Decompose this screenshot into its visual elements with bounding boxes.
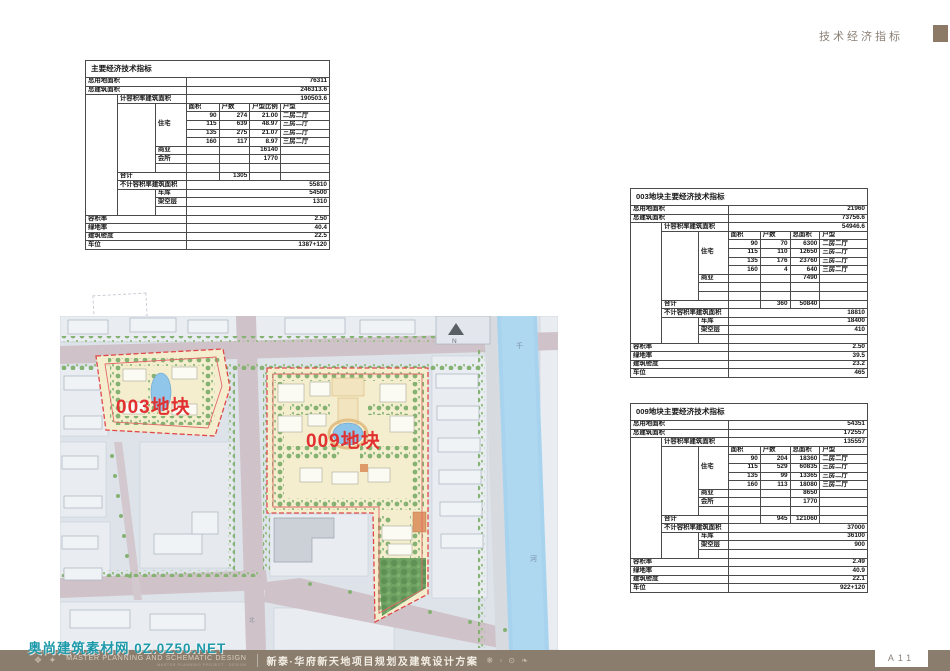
table-cell: 三房二厅 [820, 463, 868, 472]
table-cell [661, 317, 698, 343]
table-cell: 160 [728, 481, 760, 490]
table-cell [698, 283, 728, 292]
table-cell [698, 506, 728, 515]
table-cell: 529 [760, 463, 790, 472]
table-cell: 48.97 [250, 120, 281, 129]
table-cell: 70 [760, 240, 790, 249]
table-cell [820, 498, 868, 507]
site-plan-svg: 千 河 003地块 [60, 316, 558, 650]
table-cell [219, 163, 250, 172]
table-title: 主要经济技术指标 [86, 61, 330, 78]
econ-table-main: 主要经济技术指标总用地面积76311总建筑面积246313.6计容积率建筑面积1… [85, 60, 330, 250]
table-cell: 50840 [790, 300, 820, 309]
table-cell: 户型 [280, 103, 329, 112]
table-cell: 总建筑面积 [631, 214, 729, 223]
table-cell [820, 506, 868, 515]
table-cell: 三房二厅 [820, 257, 868, 266]
table-cell: 不计容积率建筑面积 [661, 524, 728, 533]
table-cell: 99 [760, 472, 790, 481]
table-cell: 7490 [790, 274, 820, 283]
table-cell: 6300 [790, 240, 820, 249]
table-cell: 639 [219, 120, 250, 129]
table-cell: 1770 [250, 155, 281, 164]
table-cell [728, 283, 760, 292]
table-cell [280, 163, 329, 172]
table-cell: 商业 [155, 146, 186, 155]
table-cell [117, 103, 155, 172]
table-cell: 21.07 [250, 129, 281, 138]
table-cell: 总建筑面积 [86, 86, 187, 95]
table-cell: 合计 [117, 172, 186, 181]
table-cell: 绿地率 [86, 224, 187, 233]
table-cell [155, 206, 186, 215]
table-cell: 三房二厅 [280, 120, 329, 129]
table-cell: 面积 [186, 103, 219, 112]
table-cell: 160 [728, 266, 760, 275]
table-cell: 车库 [698, 317, 728, 326]
table-cell [728, 506, 760, 515]
table-cell: 37000 [728, 524, 867, 533]
table-cell: 36100 [728, 532, 867, 541]
table-cell: 住宅 [698, 446, 728, 489]
table-cell: 115 [186, 120, 219, 129]
table-cell: 建筑密度 [631, 360, 729, 369]
table-cell [631, 223, 662, 343]
table-cell: 三房二厅 [280, 138, 329, 147]
table-cell: 40.4 [186, 224, 329, 233]
table-cell: 1770 [790, 498, 820, 507]
table-cell: 23760 [790, 257, 820, 266]
table-cell [250, 172, 281, 181]
table-cell: 车位 [631, 369, 729, 378]
table-cell: 计容积率建筑面积 [661, 223, 728, 232]
table-cell: 二房二厅 [820, 240, 868, 249]
table-cell: 总建筑面积 [631, 429, 729, 438]
table-cell [280, 155, 329, 164]
table-cell: 900 [728, 541, 867, 550]
table-cell [728, 274, 760, 283]
table-cell [820, 291, 868, 300]
table-cell: 922+120 [728, 584, 867, 593]
section-marker-square [933, 25, 948, 42]
table-cell: 三房二厅 [820, 248, 868, 257]
table-cell: 商业 [698, 489, 728, 498]
table-cell: 车位 [86, 241, 187, 250]
table-cell: 360 [760, 300, 790, 309]
table-cell: 户型比例 [250, 103, 281, 112]
table-cell: 商业 [698, 274, 728, 283]
table-cell [250, 163, 281, 172]
table-cell: 容积率 [631, 558, 729, 567]
table-cell: 13365 [790, 472, 820, 481]
road-name-char: 北 [249, 616, 255, 624]
table-cell: 18810 [728, 309, 867, 318]
table-cell: 40.9 [728, 567, 867, 576]
table-cell [661, 231, 698, 300]
table-cell: 18400 [728, 317, 867, 326]
table-cell [728, 515, 760, 524]
table-cell: 车库 [698, 532, 728, 541]
table-cell [186, 146, 219, 155]
table-cell: 90 [728, 455, 760, 464]
table-cell: 39.5 [728, 352, 867, 361]
table-cell [698, 549, 728, 558]
table-cell: 会所 [155, 155, 186, 164]
table-cell: 户型 [820, 446, 868, 455]
table-cell [155, 163, 186, 172]
table-cell [631, 438, 662, 558]
table-cell: 1310 [186, 198, 329, 207]
table-cell: 23.2 [728, 360, 867, 369]
table-cell [790, 506, 820, 515]
plot-003-label: 003地块 [116, 395, 191, 418]
table-cell: 总用地面积 [631, 421, 729, 430]
table-cell: 160 [186, 138, 219, 147]
table-cell: 21960 [728, 206, 867, 215]
table-cell: 54500 [186, 189, 329, 198]
table-cell: 不计容积率建筑面积 [661, 309, 728, 318]
table-cell: 合计 [661, 515, 728, 524]
footer-divider [257, 654, 258, 667]
table-cell: 22.1 [728, 575, 867, 584]
table-cell [728, 498, 760, 507]
econ-table-plot009: 009地块主要经济技术指标总用地面积54351总建筑面积172557计容积率建筑… [630, 403, 868, 593]
table-cell: 640 [790, 266, 820, 275]
table-cell: 410 [728, 326, 867, 335]
table-cell: 176 [760, 257, 790, 266]
table-cell: 204 [760, 455, 790, 464]
table-cell: 二房二厅 [820, 455, 868, 464]
table-cell [86, 95, 118, 215]
table-cell: 22.5 [186, 232, 329, 241]
plot-003: 003地块 [96, 349, 230, 436]
table-cell [728, 334, 867, 343]
table-cell [728, 300, 760, 309]
table-cell: 274 [219, 112, 250, 121]
table-cell: 90 [728, 240, 760, 249]
footer-brand-sub: MASTER PLANNING PROJECT · DESIGN [157, 663, 247, 667]
table-cell: 55810 [186, 181, 329, 190]
table-cell: 73756.6 [728, 214, 867, 223]
table-cell: 面积 [728, 231, 760, 240]
table-cell: 绿地率 [631, 567, 729, 576]
table-cell [280, 146, 329, 155]
footer-project-title: 新泰·华府新天地项目规划及建筑设计方案 [267, 653, 479, 668]
table-cell: 12650 [790, 248, 820, 257]
table-cell: 计容积率建筑面积 [661, 438, 728, 447]
table-cell: 4 [760, 266, 790, 275]
table-cell: 三房二厅 [820, 481, 868, 490]
table-cell [728, 291, 760, 300]
table-cell: 合计 [661, 300, 728, 309]
table-cell: 2.50 [186, 215, 329, 224]
table-cell: 户数 [219, 103, 250, 112]
table-cell: 车位 [631, 584, 729, 593]
table-cell: 总面积 [790, 446, 820, 455]
table-cell: 110 [760, 248, 790, 257]
footer-ornament-icons: ❋ ◦ ⊙ ❧ [486, 656, 530, 665]
table-cell: 1387+120 [186, 241, 329, 250]
table-title: 009地块主要经济技术指标 [631, 404, 868, 421]
table-cell: 60835 [790, 463, 820, 472]
table-cell: 54351 [728, 421, 867, 430]
table-cell: 建筑密度 [631, 575, 729, 584]
table-cell: 面积 [728, 446, 760, 455]
table-title: 003地块主要经济技术指标 [631, 189, 868, 206]
table-cell: 121060 [790, 515, 820, 524]
table-cell: 18080 [790, 481, 820, 490]
table-cell [219, 146, 250, 155]
table-cell: 住宅 [698, 231, 728, 274]
table-cell: 115 [728, 248, 760, 257]
river-name-top: 千 [516, 341, 523, 350]
table-cell: 户数 [760, 446, 790, 455]
table-cell: 架空层 [155, 198, 186, 207]
table-cell: 容积率 [86, 215, 187, 224]
table-cell: 54946.6 [728, 223, 867, 232]
river-name-bottom: 河 [530, 555, 537, 563]
table-cell [760, 489, 790, 498]
table-cell [760, 498, 790, 507]
table-cell: 172557 [728, 429, 867, 438]
table-cell [820, 489, 868, 498]
site-plan-map: 千 河 003地块 [60, 316, 558, 650]
plot-009-label: 009地块 [306, 429, 381, 452]
table-cell: 246313.6 [186, 86, 329, 95]
table-cell: 架空层 [698, 541, 728, 550]
table-cell [760, 274, 790, 283]
table-cell: 计容积率建筑面积 [117, 95, 186, 104]
table-cell [820, 300, 868, 309]
table-cell: 容积率 [631, 343, 729, 352]
table-cell [698, 291, 728, 300]
table-cell [790, 291, 820, 300]
table-cell [186, 172, 219, 181]
table-cell: 不计容积率建筑面积 [117, 181, 186, 190]
table-cell [186, 163, 219, 172]
table-cell [219, 155, 250, 164]
table-cell: 135 [728, 472, 760, 481]
table-cell: 135 [728, 257, 760, 266]
table-cell: 113 [760, 481, 790, 490]
table-cell: 1305 [219, 172, 250, 181]
table-cell [820, 515, 868, 524]
table-cell: 车库 [155, 189, 186, 198]
table-cell: 总用地面积 [631, 206, 729, 215]
table-cell: 18360 [790, 455, 820, 464]
section-title: 技术经济指标 [819, 28, 903, 44]
table-cell: 2.49 [728, 558, 867, 567]
table-cell: 945 [760, 515, 790, 524]
table-cell [760, 283, 790, 292]
table-cell: 21.00 [250, 112, 281, 121]
table-cell: 总面积 [790, 231, 820, 240]
table-cell: 117 [219, 138, 250, 147]
table-cell: 8650 [790, 489, 820, 498]
table-cell [661, 446, 698, 515]
table-cell: 115 [728, 463, 760, 472]
table-cell [820, 283, 868, 292]
table-cell: 总用地面积 [86, 78, 187, 87]
table-cell: 绿地率 [631, 352, 729, 361]
table-cell: 三房二厅 [820, 266, 868, 275]
econ-table-plot003: 003地块主要经济技术指标总用地面积21960总建筑面积73756.6计容积率建… [630, 188, 868, 378]
north-arrow-label: N [452, 338, 457, 345]
table-cell: 户数 [760, 231, 790, 240]
table-cell [760, 506, 790, 515]
table-cell: 190503.6 [186, 95, 329, 104]
table-cell: 户型 [820, 231, 868, 240]
table-cell: 建筑密度 [86, 232, 187, 241]
table-cell [728, 489, 760, 498]
table-cell: 90 [186, 112, 219, 121]
table-cell [280, 172, 329, 181]
table-cell: 135 [186, 129, 219, 138]
table-cell [186, 206, 329, 215]
table-cell [698, 334, 728, 343]
table-cell: 76311 [186, 78, 329, 87]
page-number: A11 [875, 650, 928, 667]
table-cell: 三房二厅 [820, 472, 868, 481]
table-cell: 465 [728, 369, 867, 378]
table-cell: 架空层 [698, 326, 728, 335]
table-cell [186, 155, 219, 164]
table-cell: 16140 [250, 146, 281, 155]
table-cell [790, 283, 820, 292]
table-cell [760, 291, 790, 300]
table-cell: 135557 [728, 438, 867, 447]
table-cell [820, 274, 868, 283]
table-cell [117, 189, 155, 215]
table-cell: 二房二厅 [280, 112, 329, 121]
table-cell [661, 532, 698, 558]
table-cell: 会所 [698, 498, 728, 507]
table-cell: 住宅 [155, 103, 186, 146]
table-cell: 三房二厅 [280, 129, 329, 138]
table-cell: 8.97 [250, 138, 281, 147]
table-cell [728, 549, 867, 558]
table-cell: 275 [219, 129, 250, 138]
watermark-text: 奥尚建筑素材网 0Z.0Z50.NET [28, 637, 226, 657]
table-cell: 2.50 [728, 343, 867, 352]
